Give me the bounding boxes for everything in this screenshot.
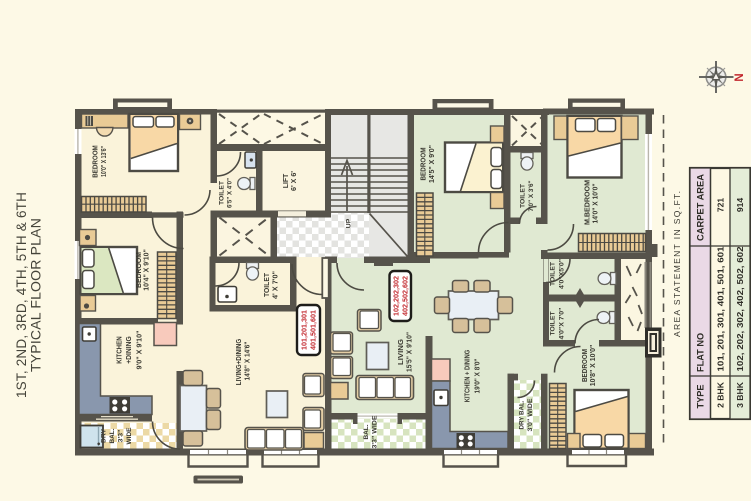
svg-text:721: 721 bbox=[716, 198, 726, 213]
svg-text:+DINING: +DINING bbox=[124, 336, 133, 364]
svg-text:DRY: DRY bbox=[101, 429, 108, 443]
svg-text:TYPE: TYPE bbox=[696, 385, 706, 409]
svg-text:KITCHEN: KITCHEN bbox=[115, 336, 124, 364]
svg-text:2 BHK: 2 BHK bbox=[716, 381, 726, 408]
svg-text:10'4" X 9'10": 10'4" X 9'10" bbox=[144, 249, 151, 291]
svg-text:LIVING: LIVING bbox=[396, 339, 405, 365]
svg-text:6' X 6': 6' X 6' bbox=[291, 171, 298, 191]
svg-text:KITCHEN + DINING: KITCHEN + DINING bbox=[463, 350, 472, 403]
svg-text:BEDROOM: BEDROOM bbox=[419, 148, 428, 181]
svg-text:M.BEDROOM: M.BEDROOM bbox=[583, 180, 592, 225]
svg-text:WIDE: WIDE bbox=[126, 427, 133, 444]
svg-text:LIFT: LIFT bbox=[281, 173, 290, 188]
svg-text:101, 201, 301, 401, 501, 601: 101, 201, 301, 401, 501, 601 bbox=[716, 246, 726, 371]
svg-text:10'0" X 13'6": 10'0" X 13'6" bbox=[101, 146, 108, 177]
svg-text:TOILET: TOILET bbox=[550, 311, 557, 336]
svg-text:102,202,302: 102,202,302 bbox=[392, 276, 401, 316]
svg-text:3 BHK: 3 BHK bbox=[735, 381, 745, 408]
svg-text:4'0"X5'0": 4'0"X5'0" bbox=[559, 259, 566, 289]
svg-text:401,501,601: 401,501,601 bbox=[309, 309, 318, 350]
svg-text:UP: UP bbox=[346, 218, 353, 228]
svg-text:LIVING+DINING: LIVING+DINING bbox=[234, 339, 243, 386]
svg-text:10'8" X 10'0": 10'8" X 10'0" bbox=[590, 345, 597, 387]
svg-text:AREA STATEMENT IN SQ.FT.: AREA STATEMENT IN SQ.FT. bbox=[672, 191, 682, 337]
svg-text:914: 914 bbox=[735, 198, 745, 213]
svg-text:9'0" X 9'10": 9'0" X 9'10" bbox=[137, 331, 144, 370]
svg-text:BAL.: BAL. bbox=[363, 424, 370, 439]
svg-text:TOILET: TOILET bbox=[520, 183, 527, 208]
svg-text:102, 202, 302, 402, 502, 602: 102, 202, 302, 402, 502, 602 bbox=[735, 246, 745, 371]
svg-text:4'0"X 7'0": 4'0"X 7'0" bbox=[559, 308, 566, 340]
svg-text:CARPET AREA: CARPET AREA bbox=[696, 174, 706, 241]
svg-text:BEDROOM: BEDROOM bbox=[134, 252, 143, 288]
svg-text:BAL.: BAL. bbox=[109, 428, 116, 443]
svg-text:3'0" WIDE: 3'0" WIDE bbox=[527, 398, 534, 431]
svg-text:3'3" WIDE: 3'3" WIDE bbox=[372, 415, 379, 448]
svg-text:TYPICAL FLOOR PLAN: TYPICAL FLOOR PLAN bbox=[28, 218, 44, 372]
svg-text:TOILET: TOILET bbox=[262, 273, 271, 297]
svg-text:14'5" X 9'0": 14'5" X 9'0" bbox=[429, 145, 436, 183]
svg-text:BEDROOM: BEDROOM bbox=[580, 349, 589, 382]
svg-text:3'3": 3'3" bbox=[118, 430, 125, 443]
svg-text:BEDROOM: BEDROOM bbox=[91, 145, 100, 178]
svg-text:15'5" X 9'10": 15'5" X 9'10" bbox=[407, 332, 414, 372]
svg-text:14'0" X 10'0": 14'0" X 10'0" bbox=[593, 184, 600, 224]
svg-text:7'0" X 3'6": 7'0" X 3'6" bbox=[528, 181, 535, 212]
svg-text:N: N bbox=[732, 73, 744, 81]
svg-text:19'0" X 8'0": 19'0" X 8'0" bbox=[475, 359, 482, 394]
svg-text:1ST, 2ND, 3RD, 4TH, 5TH & 6TH: 1ST, 2ND, 3RD, 4TH, 5TH & 6TH bbox=[14, 192, 29, 398]
svg-text:FLAT NO: FLAT NO bbox=[696, 333, 706, 372]
svg-text:402,502,602: 402,502,602 bbox=[401, 276, 410, 316]
svg-text:4' X 7'0": 4' X 7'0" bbox=[273, 271, 280, 299]
svg-text:TOILET: TOILET bbox=[219, 180, 226, 205]
svg-text:101,201,301: 101,201,301 bbox=[300, 309, 309, 350]
svg-text:TOILET: TOILET bbox=[550, 261, 557, 286]
svg-text:14'8" X 14'6": 14'8" X 14'6" bbox=[245, 342, 252, 381]
svg-text:DRY BAL.: DRY BAL. bbox=[519, 400, 526, 429]
svg-text:6'5" X 4'0": 6'5" X 4'0" bbox=[227, 178, 234, 208]
